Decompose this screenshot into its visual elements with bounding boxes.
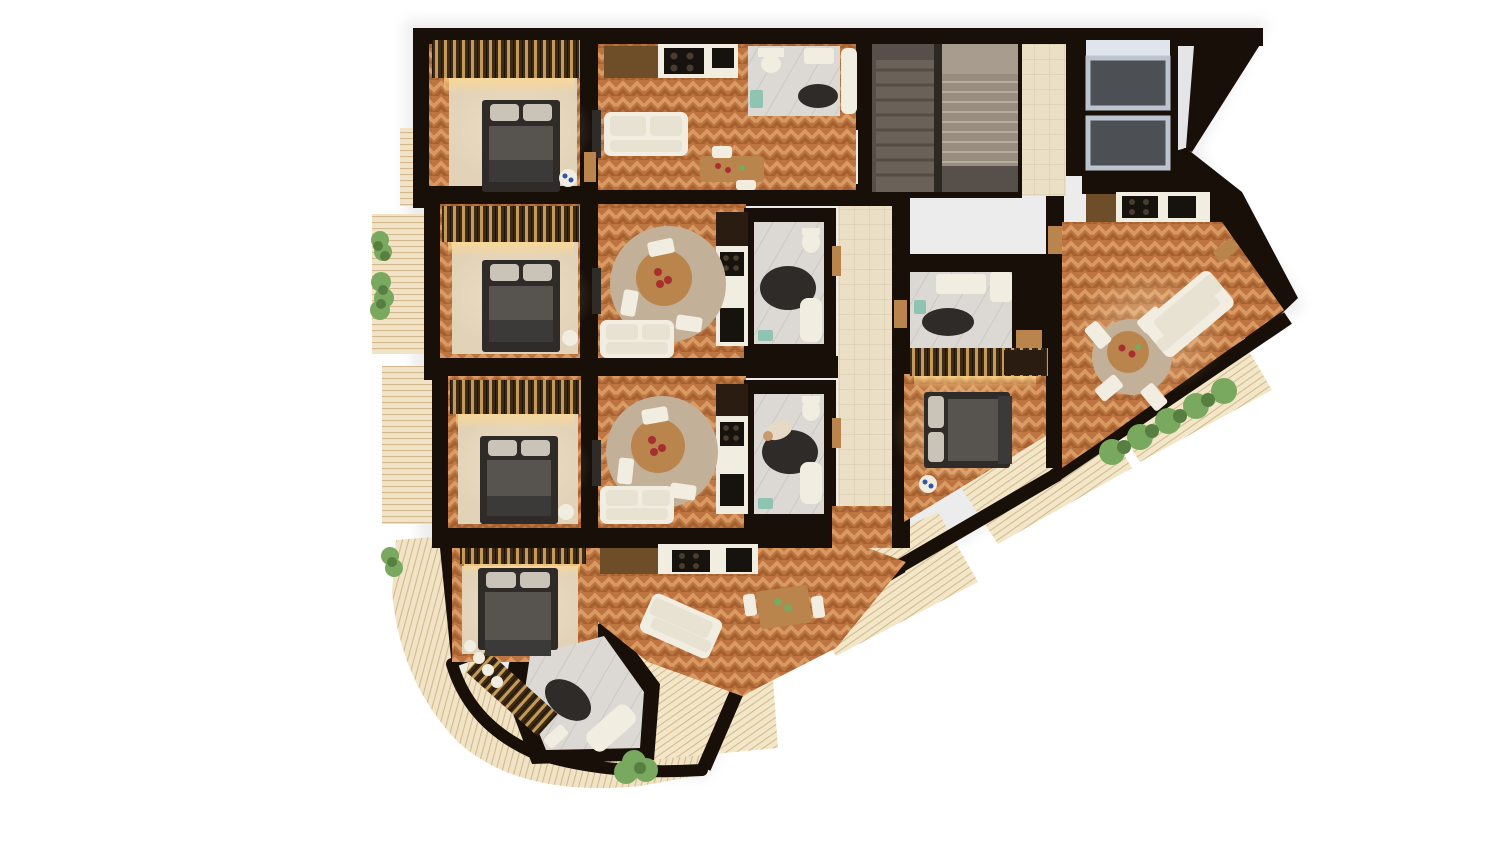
apt3-bed-pillow-2 — [521, 440, 550, 456]
apt4-bed-blanket — [485, 592, 551, 642]
apt1-dining-chair-1 — [712, 146, 732, 158]
elevator-cab-1 — [1088, 58, 1168, 108]
studioB-tub — [800, 462, 822, 504]
studioB-sofa-seat — [606, 508, 668, 520]
plant-balcony-3-dark-dot — [387, 557, 397, 567]
apt4-table-greens-dot — [774, 598, 782, 606]
apt4-burners-dot — [693, 563, 699, 569]
apt4-burners-dot — [679, 553, 685, 559]
rb-dresser — [1004, 350, 1046, 375]
apt1-sofa-seat — [610, 140, 682, 152]
apt4-table-greens-dot — [784, 604, 792, 612]
door-studioA — [832, 246, 841, 276]
door-rb-bath — [1016, 330, 1042, 348]
studioB-flowers-dot — [648, 436, 656, 444]
studioB-burners-dot — [733, 435, 739, 441]
door-studioB — [832, 418, 841, 448]
balcony-left-strip — [400, 128, 414, 206]
apt1-dining-table — [700, 156, 764, 182]
hedge-right-dark-dot — [1117, 440, 1131, 454]
apt2-tv — [592, 268, 601, 314]
stairs-landing-top — [940, 44, 1018, 74]
studioA-burners-dot — [723, 255, 729, 261]
apt1-sofa-cushion-1 — [610, 116, 646, 136]
rightapt-cooktop — [1122, 196, 1158, 218]
rightapt-burners-dot — [1143, 199, 1149, 205]
plant-terrace-bottom-dark-dot — [634, 762, 646, 774]
studioA-burners-dot — [733, 265, 739, 271]
studioB-burners-dot — [723, 435, 729, 441]
apt4-bed-pillow-2 — [520, 572, 550, 588]
apt1-bed-pillow-2 — [523, 104, 552, 121]
studioB-person-head — [763, 431, 773, 441]
rb-bath-rug — [922, 308, 974, 336]
apt1-cooktop — [664, 48, 704, 74]
studioA-tub — [800, 298, 822, 342]
studioB-burners-dot — [733, 425, 739, 431]
apt1-bathtub — [841, 48, 857, 114]
rb-bath-mat — [914, 300, 926, 314]
apt1-burners-dot — [671, 53, 678, 60]
apt2-side-table — [562, 330, 578, 346]
plant-balcony-3-dark — [387, 557, 397, 567]
studioB-cooktop — [720, 422, 744, 446]
apt2-wardrobe-glow — [448, 242, 574, 257]
apt1-table-green-dot — [739, 165, 745, 171]
hedge-right-dark-dot — [1173, 409, 1187, 423]
rightapt-table-green — [1135, 344, 1141, 350]
apt1-toilet — [761, 55, 781, 73]
rightapt-kitchen-wood — [1086, 194, 1116, 222]
rightapt-flowers-dot — [1129, 351, 1136, 358]
wall-row-2 — [424, 356, 846, 378]
door-apt1-bedroom — [584, 152, 596, 182]
apt3-side-table — [558, 504, 574, 520]
rightapt-flowers-dot — [1119, 345, 1126, 352]
wall-kitchen-right — [1082, 172, 1214, 194]
apt1-burners-dot — [687, 53, 694, 60]
apt4-kitchen-block — [726, 548, 752, 572]
apt3-wardrobe — [450, 380, 581, 414]
apt1-kitchen-wood — [604, 46, 658, 78]
studioB-table — [631, 419, 685, 473]
apt1-sofa-cushion-2 — [650, 116, 682, 136]
studioA-table — [636, 250, 692, 306]
studioA-sofa-cushion-1 — [606, 324, 638, 340]
studioA-kitchen-block — [720, 308, 744, 342]
apt4-bed-throw — [485, 640, 551, 656]
apt2-wardrobe — [442, 206, 580, 242]
apt1-sink — [712, 48, 734, 68]
apt3-bed-throw — [487, 496, 551, 516]
studioA-flowers-dot — [656, 280, 664, 288]
studioA-kitchen-strip — [716, 212, 748, 246]
studioB-burners-dot — [723, 425, 729, 431]
rb-side-decor-dot — [923, 480, 928, 485]
rb-bath-basin — [936, 274, 986, 294]
studioA-sofa-seat — [606, 342, 668, 354]
hedge-right-dark-dot — [1201, 393, 1215, 407]
apt3-bed-pillow-1 — [488, 440, 517, 456]
wall-left-2 — [424, 196, 440, 380]
apt1-dining-chair-2 — [736, 180, 756, 190]
plant-balcony-1-dark-dot — [380, 251, 390, 261]
stairs-divider — [934, 44, 942, 192]
apt1-side-decor-dot — [563, 174, 568, 179]
studioA-sofa-cushion-2 — [642, 324, 670, 340]
studioB-flowers-dot — [650, 448, 658, 456]
stairs-flight-left — [876, 60, 934, 192]
apt1-table-green — [739, 165, 745, 171]
apt4-dining-table — [756, 585, 813, 630]
elevator-top-glow — [1086, 40, 1170, 56]
apt4-shelf-towels-dot — [473, 652, 485, 664]
plant-terrace-bottom-dot — [614, 760, 638, 784]
apt1-tv — [592, 110, 601, 158]
apt4-shelf-towels-dot — [482, 664, 494, 676]
rb-bed-pillow-2 — [928, 432, 944, 462]
apt1-bath-rug — [798, 84, 838, 108]
studioB-kitchen-strip — [716, 384, 748, 416]
apt4-shelf-towels-dot — [491, 676, 503, 688]
studioA-flowers-dot — [654, 268, 662, 276]
rightapt-burners-dot — [1129, 199, 1135, 205]
rightapt-burners-dot — [1143, 209, 1149, 215]
rb-side-decor-dot — [929, 484, 934, 489]
apt1-wardrobe — [432, 40, 580, 78]
apt1-burners-dot — [671, 65, 678, 72]
rightapt-table-green-dot — [1135, 344, 1141, 350]
scene-root — [370, 20, 1305, 788]
apt3-wardrobe-glow — [456, 414, 574, 429]
apt2-bed-pillow-2 — [523, 264, 552, 281]
plant-balcony-2-dark-dot — [378, 285, 388, 295]
rb-side-table — [919, 475, 937, 493]
plant-terrace-bottom-dark — [634, 762, 646, 774]
apt4-cooktop — [672, 550, 710, 572]
apt1-bath-mat — [750, 90, 763, 108]
apt4-shelf-towels-dot — [464, 640, 476, 652]
apt4-burners-dot — [693, 553, 699, 559]
apt1-burners-dot — [687, 65, 694, 72]
studioA-burners-dot — [733, 255, 739, 261]
rb-wardrobe-glow — [914, 376, 1036, 389]
apt4-kitchen-wood — [600, 548, 658, 574]
studioB-bath-mat — [758, 498, 773, 509]
hallway-floor — [838, 206, 892, 506]
apt1-bed-pillow-1 — [490, 104, 519, 121]
studioA-toilet — [802, 231, 820, 253]
apt4-burners-dot — [679, 563, 685, 569]
wall-left-1 — [413, 28, 429, 208]
door-rb — [894, 300, 907, 328]
rightapt-burners-dot — [1129, 209, 1135, 215]
apt1-wardrobe-glow — [444, 78, 574, 94]
hallway-entry-floor — [832, 506, 892, 548]
corridor-floor — [1022, 44, 1066, 196]
wall-left-3 — [432, 376, 448, 530]
plant-balcony-2-dark-dot — [376, 299, 386, 309]
elevator-cab-2 — [1088, 118, 1168, 168]
apt1-table-decor-dot — [725, 167, 731, 173]
studioB-sofa-cushion-2 — [642, 490, 670, 506]
apt1-side-table — [559, 169, 577, 187]
studioB-flowers-dot — [658, 444, 666, 452]
apt1-bath-sink — [804, 48, 834, 64]
studioB-chair-2 — [617, 457, 635, 484]
apt3-tv — [592, 440, 601, 486]
apt4-wardrobe — [460, 548, 586, 564]
rightapt-table — [1107, 331, 1149, 373]
apt1-table-decor-dot — [715, 163, 721, 169]
hedge-right-dark-dot — [1145, 424, 1159, 438]
apt1-side-decor-dot — [569, 178, 574, 183]
studioA-flowers-dot — [664, 276, 672, 284]
apt1-bed-throw — [489, 160, 553, 182]
studioB-toilet — [802, 399, 820, 421]
apt2-bed-throw — [489, 320, 553, 342]
studioB-kitchen-block — [720, 474, 744, 506]
rb-bed-throw — [998, 396, 1012, 464]
floor-plan-svg — [0, 0, 1500, 844]
studioA-bath-mat — [758, 330, 773, 341]
rb-bed-pillow-1 — [928, 396, 944, 428]
rb-bed-blanket — [948, 399, 998, 461]
rb-bath-tub — [990, 272, 1012, 302]
plant-balcony-1-dark-dot — [373, 241, 383, 251]
apt4-bed-pillow-1 — [486, 572, 516, 588]
rightapt-appliance — [1168, 196, 1196, 218]
apt2-bed-pillow-1 — [490, 264, 519, 281]
door-rightapt — [1048, 226, 1062, 254]
studioB-sofa-cushion-1 — [606, 490, 638, 506]
floor-plan-image — [0, 0, 1500, 844]
